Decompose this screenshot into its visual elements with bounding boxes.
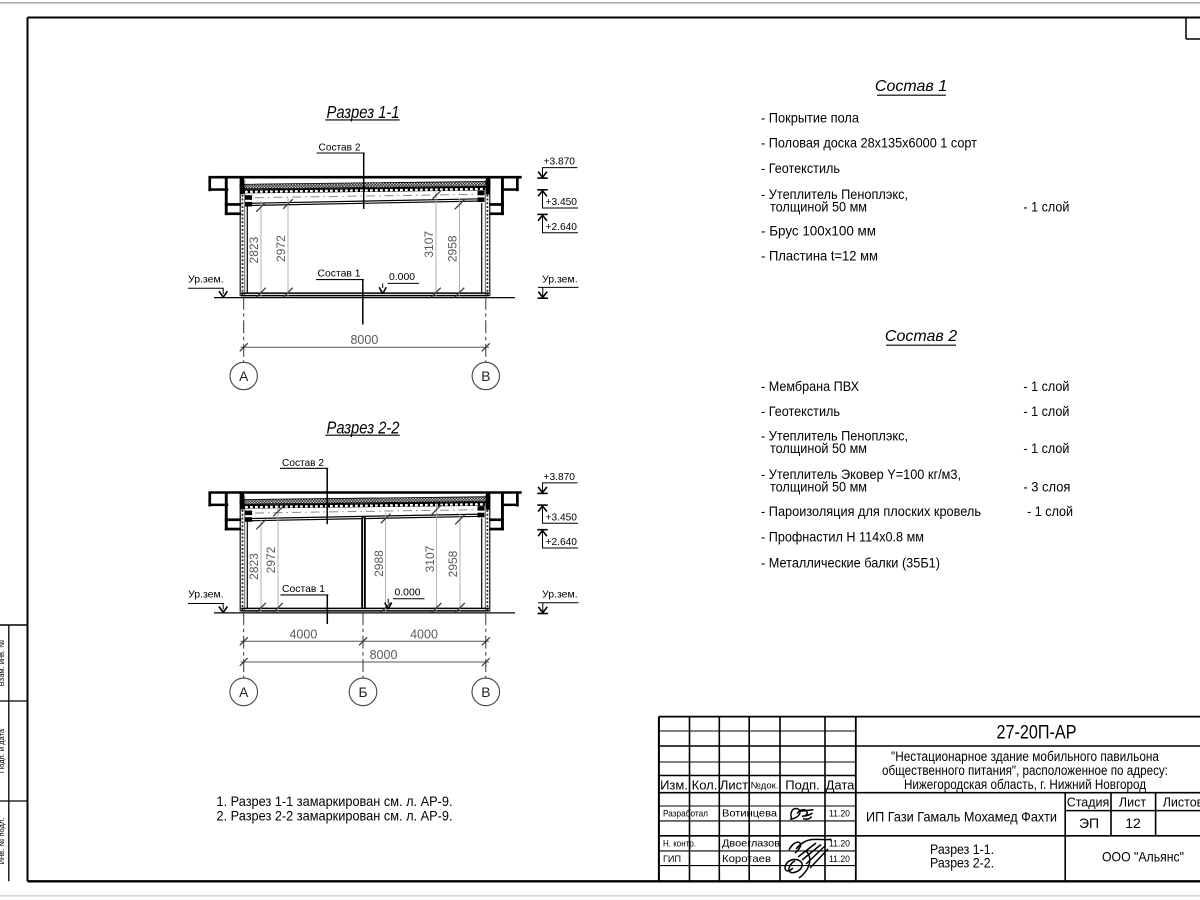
- svg-text:- Пластина t=12 мм: - Пластина t=12 мм: [761, 247, 878, 263]
- svg-text:- 1 слой: - 1 слой: [1023, 378, 1069, 394]
- svg-text:2972: 2972: [274, 235, 288, 262]
- svg-text:Дата: Дата: [826, 777, 856, 792]
- svg-text:А: А: [239, 369, 249, 384]
- svg-text:4000: 4000: [410, 628, 438, 642]
- svg-text:- Покрытие пола: - Покрытие пола: [761, 110, 859, 126]
- svg-text:- 1 слой: - 1 слой: [1023, 403, 1069, 419]
- svg-text:толщиной 50 мм: толщиной 50 мм: [770, 479, 867, 495]
- svg-text:Разработал: Разработал: [663, 809, 708, 820]
- svg-text:В: В: [481, 369, 490, 384]
- svg-text:- Металлические балки (35Б1): - Металлические балки (35Б1): [761, 554, 940, 570]
- svg-text:11.20: 11.20: [829, 838, 850, 849]
- svg-text:11.20: 11.20: [829, 854, 850, 865]
- svg-text:+3.450: +3.450: [546, 513, 578, 524]
- svg-text:Состав 2: Состав 2: [319, 142, 361, 154]
- svg-text:Инв. № подл.: Инв. № подл.: [0, 818, 6, 865]
- svg-text:0.000: 0.000: [389, 271, 415, 283]
- svg-text:3107: 3107: [422, 231, 436, 258]
- svg-text:- Пароизоляция для плоских кро: - Пароизоляция для плоских кровель: [761, 503, 981, 519]
- svg-text:общественного питания", распол: общественного питания", расположенное по…: [882, 763, 1168, 778]
- svg-text:Вотинцева: Вотинцева: [722, 808, 777, 820]
- svg-text:12: 12: [1125, 815, 1141, 831]
- svg-text:Разрез 1-1: Разрез 1-1: [327, 102, 400, 122]
- svg-text:0.000: 0.000: [395, 587, 421, 599]
- svg-text:Коротаев: Коротаев: [722, 853, 771, 865]
- svg-text:Подп.: Подп.: [785, 777, 820, 792]
- svg-text:"Нестационарное здание мобильн: "Нестационарное здание мобильного павиль…: [891, 749, 1159, 764]
- svg-text:Состав 2: Состав 2: [282, 457, 324, 469]
- svg-text:Б: Б: [358, 685, 367, 700]
- svg-text:Состав 1: Состав 1: [282, 583, 325, 595]
- svg-text:Ур.зем.: Ур.зем.: [542, 589, 578, 601]
- svg-text:Ур.зем.: Ур.зем.: [188, 589, 224, 601]
- svg-text:- Половая доска 28х135х6000 1: - Половая доска 28х135х6000 1 сорт: [761, 135, 978, 151]
- svg-text:+3.450: +3.450: [546, 197, 578, 208]
- svg-text:- Геотекстиль: - Геотекстиль: [761, 160, 840, 176]
- svg-text:ООО "Альянс": ООО "Альянс": [1102, 848, 1184, 864]
- svg-text:Состав 2: Состав 2: [885, 328, 957, 345]
- svg-text:толщиной 50 мм: толщиной 50 мм: [770, 198, 867, 214]
- svg-text:+3.870: +3.870: [544, 157, 576, 168]
- svg-text:11.20: 11.20: [829, 809, 850, 820]
- svg-text:- 1 слой: - 1 слой: [1023, 440, 1069, 456]
- svg-text:Разрез 2-2.: Разрез 2-2.: [930, 854, 994, 870]
- svg-text:4000: 4000: [289, 628, 317, 642]
- svg-text:Подп. и дата: Подп. и дата: [0, 728, 6, 773]
- svg-text:2988: 2988: [372, 550, 386, 577]
- svg-text:+3.870: +3.870: [544, 472, 576, 483]
- svg-text:Лист: Лист: [1119, 795, 1146, 809]
- svg-text:2958: 2958: [446, 235, 460, 262]
- svg-text:В: В: [481, 685, 490, 700]
- svg-text:- Брус 100х100 мм: - Брус 100х100 мм: [761, 222, 876, 238]
- svg-text:Лист: Лист: [720, 777, 748, 792]
- svg-text:ЭП: ЭП: [1079, 815, 1099, 831]
- svg-text:- 1 слой: - 1 слой: [1027, 503, 1073, 519]
- svg-text:Состав 1: Состав 1: [318, 268, 361, 280]
- svg-text:- Профнастил Н 114х0.8 мм: - Профнастил Н 114х0.8 мм: [761, 529, 924, 545]
- svg-text:Состав 1: Состав 1: [875, 78, 947, 95]
- svg-text:2972: 2972: [264, 546, 278, 573]
- svg-text:27-20П-АР: 27-20П-АР: [997, 722, 1077, 744]
- svg-text:+2.640: +2.640: [546, 537, 578, 548]
- svg-text:А: А: [239, 685, 249, 700]
- svg-text:- Мембрана ПВХ: - Мембрана ПВХ: [761, 378, 860, 394]
- svg-text:ГИП: ГИП: [663, 854, 681, 865]
- svg-text:2823: 2823: [247, 236, 261, 263]
- svg-text:ИП Гази Гамаль Мохамед Фахти: ИП Гази Гамаль Мохамед Фахти: [866, 808, 1057, 824]
- svg-text:3107: 3107: [423, 545, 437, 572]
- svg-text:Н. контр.: Н. контр.: [663, 838, 696, 849]
- svg-text:8000: 8000: [350, 333, 378, 347]
- svg-text:Изм.: Изм.: [660, 777, 688, 792]
- svg-text:8000: 8000: [370, 648, 398, 662]
- svg-text:№док.: №док.: [751, 781, 779, 792]
- svg-text:2. Разрез 2-2 замаркирован см.: 2. Разрез 2-2 замаркирован см. л. АР-9.: [217, 808, 453, 824]
- svg-text:Листов: Листов: [1163, 795, 1200, 809]
- svg-text:+2.640: +2.640: [546, 222, 578, 233]
- svg-text:Ур.зем.: Ур.зем.: [188, 273, 224, 285]
- svg-text:толщиной 50 мм: толщиной 50 мм: [770, 440, 867, 456]
- svg-text:- 3 слоя: - 3 слоя: [1023, 479, 1070, 495]
- svg-text:- 1 слой: - 1 слой: [1023, 198, 1069, 214]
- svg-text:Ур.зем.: Ур.зем.: [542, 273, 578, 285]
- svg-text:2958: 2958: [446, 550, 460, 577]
- svg-text:Взам. инв. №: Взам. инв. №: [0, 640, 6, 686]
- svg-text:Разрез 2-2: Разрез 2-2: [327, 417, 400, 437]
- svg-text:Двоеглазов: Двоеглазов: [722, 837, 780, 849]
- svg-text:- Геотекстиль: - Геотекстиль: [761, 403, 840, 419]
- svg-text:Нижегородская область, г. Нижн: Нижегородская область, г. Нижний Новгоро…: [904, 777, 1146, 792]
- svg-text:Стадия: Стадия: [1067, 795, 1110, 809]
- svg-text:Кол.: Кол.: [692, 777, 718, 792]
- svg-text:2823: 2823: [247, 553, 261, 580]
